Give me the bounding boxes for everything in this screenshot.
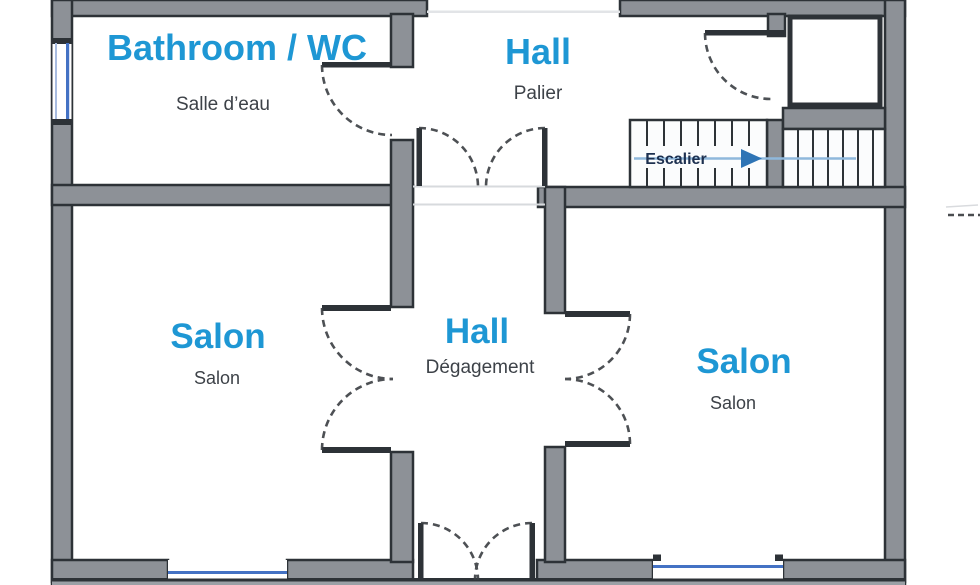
salon-left-title: Salon: [170, 317, 265, 356]
bottom-wall-outer-strip: [52, 582, 905, 585]
window-bl-glass: [168, 560, 287, 579]
wall-corridor-left-a: [391, 14, 413, 67]
window-br-nub-left: [653, 555, 661, 562]
bathroom-title: Bathroom / WC: [107, 27, 367, 68]
window-left-wall: [52, 38, 72, 125]
entrance-door-leaf-right: [530, 523, 536, 578]
wall-corridor-right-a: [545, 187, 565, 313]
wall-stairs-divider: [767, 120, 783, 187]
wall-band-below-closet: [783, 108, 885, 129]
wall-corridor-left-c: [391, 452, 413, 562]
salon-left-subtitle: Salon: [194, 368, 240, 388]
hall-center-subtitle: Dégagement: [426, 357, 536, 378]
window-left-pane-line: [66, 43, 69, 119]
hall-center-title: Hall: [445, 312, 509, 351]
outer-wall-right: [885, 0, 905, 585]
corridor-faint-line-2: [413, 204, 545, 206]
window-br-nub-right: [775, 555, 783, 562]
hall-upper-door-leaf-left: [417, 128, 423, 186]
stairs: Escalier: [630, 120, 885, 187]
hall-upper-door-leaf-right: [542, 128, 548, 186]
window-left-outer-line: [55, 43, 57, 119]
window-br-glass: [653, 560, 783, 579]
wall-bathroom-salon: [52, 185, 413, 205]
window-left-cap-bottom: [52, 119, 72, 125]
bathroom-subtitle: Salle d’eau: [176, 94, 270, 115]
salon-right-title: Salon: [696, 342, 791, 381]
wall-stairs-salon: [538, 187, 905, 207]
closet-door-leaf: [705, 30, 785, 36]
salon-left-door-leaf-bottom: [322, 447, 391, 453]
top-opening-faint-line: [427, 11, 620, 14]
hall-upper-subtitle: Palier: [514, 83, 563, 104]
stairs-label: Escalier: [645, 151, 706, 168]
entrance-door-leaf-left: [418, 523, 424, 578]
hall-upper-title: Hall: [505, 31, 571, 72]
window-bl-pane-line: [168, 571, 287, 574]
outer-wall-top-right: [620, 0, 905, 16]
salon-right-door-leaf-top: [565, 311, 630, 317]
window-br-pane-line: [653, 565, 783, 568]
outer-wall-top-left: [52, 0, 427, 16]
salon-left-door-leaf-top: [322, 305, 391, 311]
floor-plan-svg: Escalier Bathroom / WC Salle d’eau Ha: [0, 0, 980, 585]
salon-right-door-leaf-bottom: [565, 441, 630, 447]
wall-corridor-left-b: [391, 140, 413, 307]
closet-room: [790, 17, 880, 105]
salon-right-subtitle: Salon: [710, 393, 756, 413]
corridor-faint-line-1: [413, 186, 545, 188]
window-bottom-left: [168, 560, 287, 579]
wall-corridor-right-b: [545, 447, 565, 562]
floor-plan-page: Escalier Bathroom / WC Salle d’eau Ha: [0, 0, 980, 585]
